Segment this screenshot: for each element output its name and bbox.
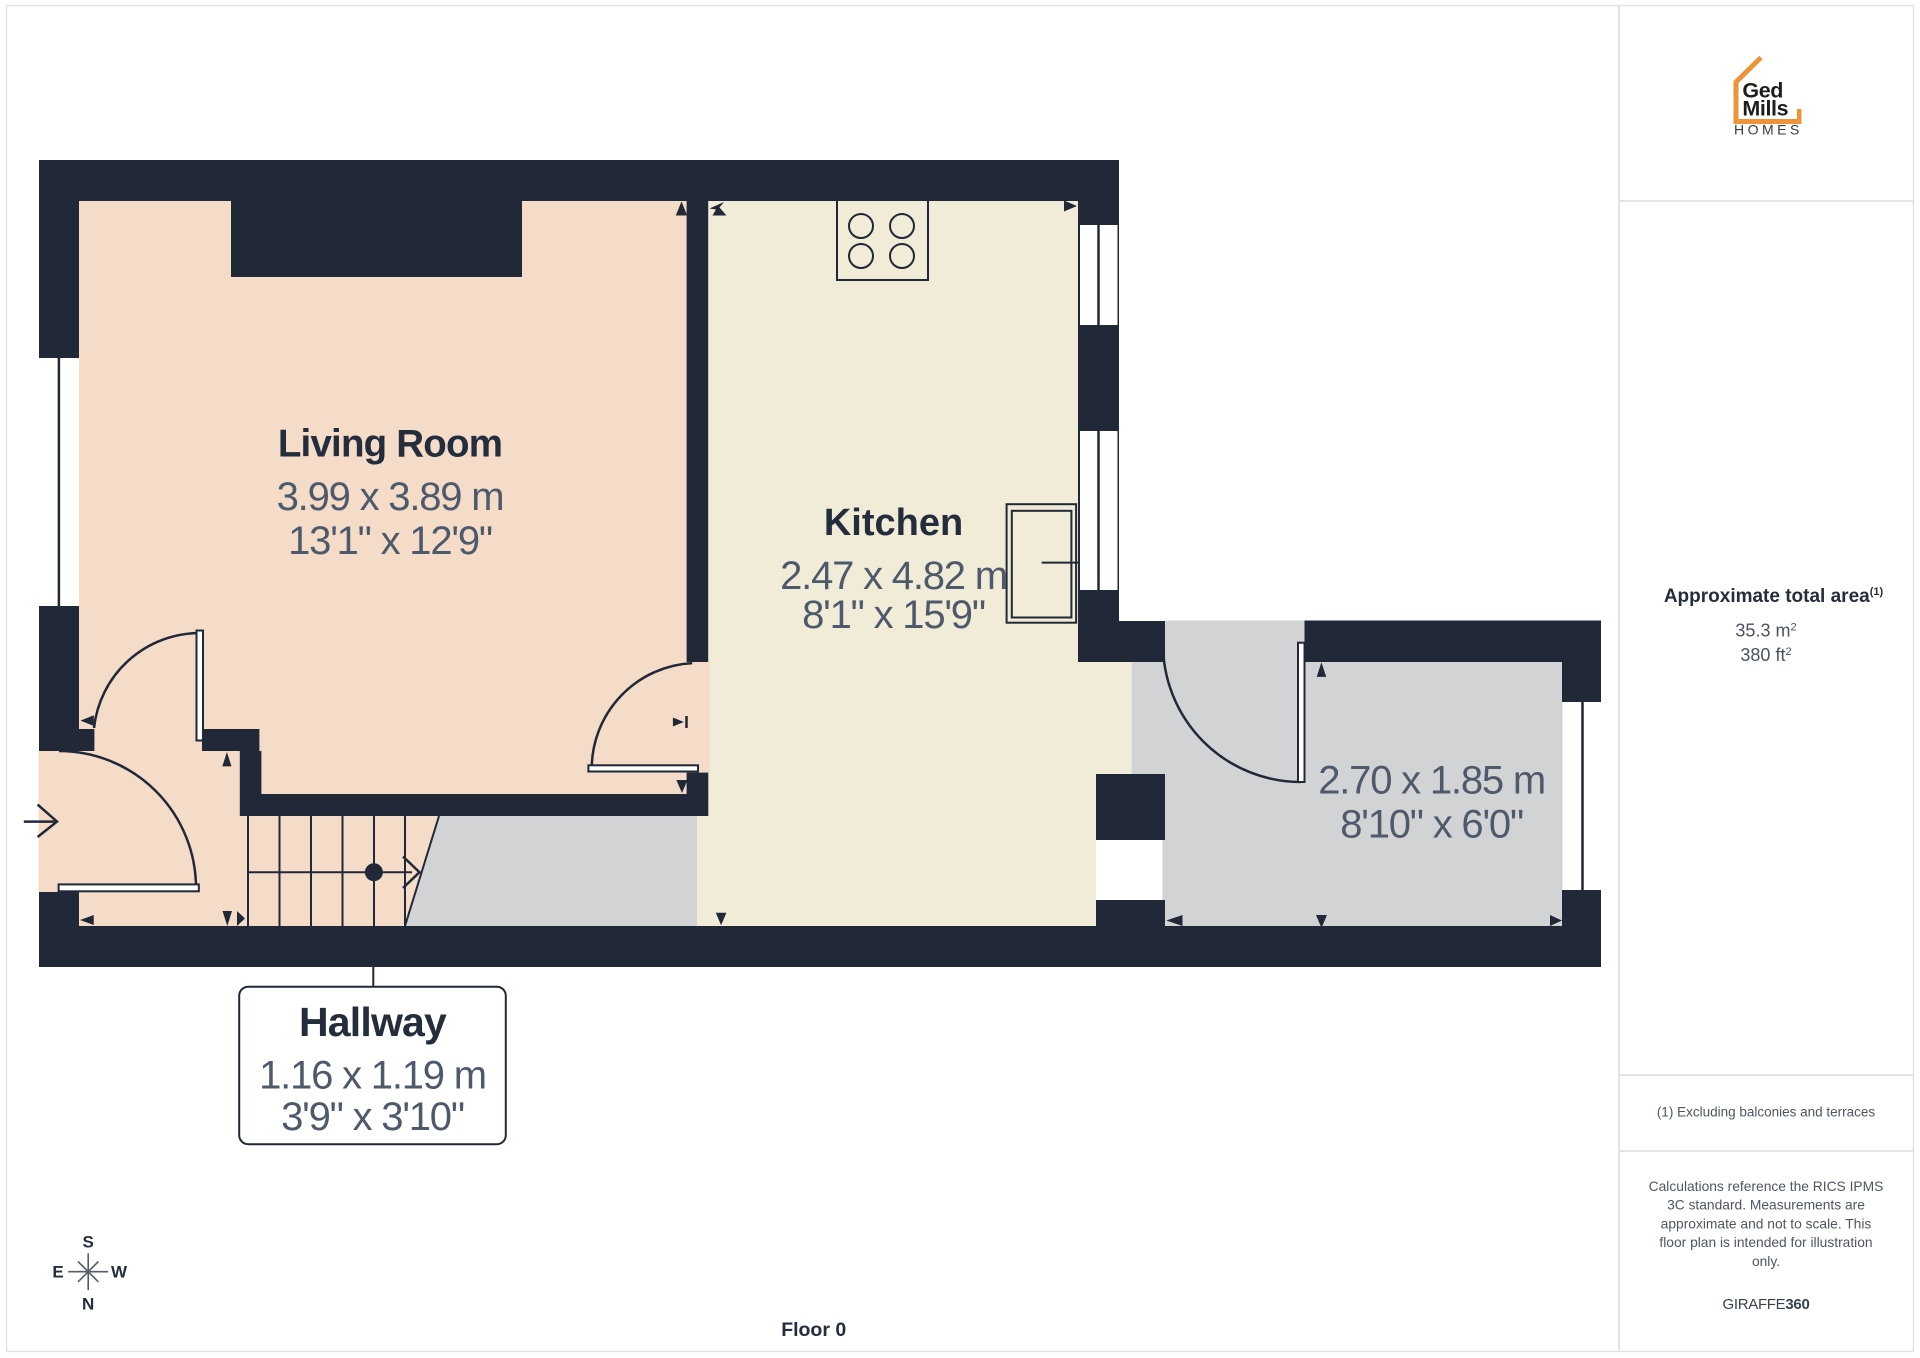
svg-text:Kitchen: Kitchen [824,502,963,544]
svg-text:380 ft2: 380 ft2 [1740,645,1791,665]
svg-text:Calculations reference the RIC: Calculations reference the RICS IPMS [1649,1179,1884,1194]
svg-text:E: E [52,1263,63,1282]
svg-text:1.16 x 1.19 m: 1.16 x 1.19 m [259,1053,486,1097]
svg-text:3'9" x 3'10": 3'9" x 3'10" [281,1095,464,1139]
svg-text:Hallway: Hallway [299,999,447,1045]
svg-text:2.47 x 4.82 m: 2.47 x 4.82 m [780,554,1007,598]
svg-text:Floor 0: Floor 0 [781,1319,846,1341]
svg-text:N: N [82,1295,94,1314]
svg-text:8'10" x 6'0": 8'10" x 6'0" [1340,803,1523,847]
svg-text:floor plan is intended for ill: floor plan is intended for illustration [1659,1235,1872,1250]
svg-text:Living Room: Living Room [278,422,502,465]
svg-text:(1) Excluding balconies and te: (1) Excluding balconies and terraces [1657,1105,1876,1120]
svg-text:S: S [83,1233,94,1252]
svg-text:2.70 x 1.85 m: 2.70 x 1.85 m [1318,758,1545,802]
svg-text:3.99 x 3.89 m: 3.99 x 3.89 m [277,475,504,519]
svg-text:HOMES: HOMES [1734,122,1803,138]
svg-text:only.: only. [1752,1254,1780,1269]
svg-text:8'1" x 15'9": 8'1" x 15'9" [802,593,985,637]
svg-text:Approximate total area(1): Approximate total area(1) [1664,586,1884,607]
svg-text:13'1" x 12'9": 13'1" x 12'9" [288,519,492,563]
svg-text:3C standard. Measurements are: 3C standard. Measurements are [1667,1198,1865,1213]
svg-text:approximate and not to scale.: approximate and not to scale. This [1661,1217,1872,1232]
svg-text:Mills: Mills [1742,97,1788,121]
svg-text:W: W [111,1263,128,1282]
svg-text:GIRAFFE360: GIRAFFE360 [1722,1296,1809,1313]
svg-text:35.3 m2: 35.3 m2 [1735,621,1796,641]
